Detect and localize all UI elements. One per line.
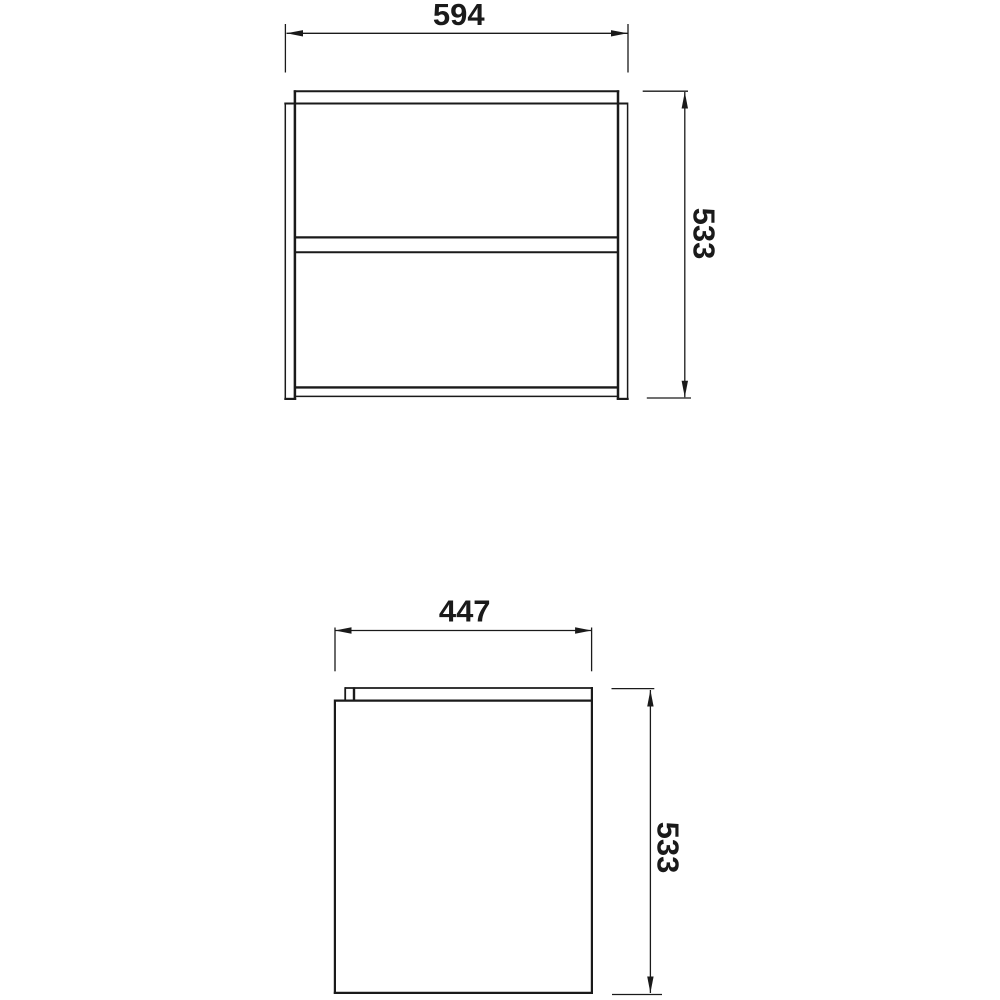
svg-text:594: 594 [433, 0, 485, 32]
svg-text:447: 447 [439, 594, 491, 629]
svg-text:533: 533 [651, 822, 686, 874]
svg-text:533: 533 [687, 208, 722, 260]
